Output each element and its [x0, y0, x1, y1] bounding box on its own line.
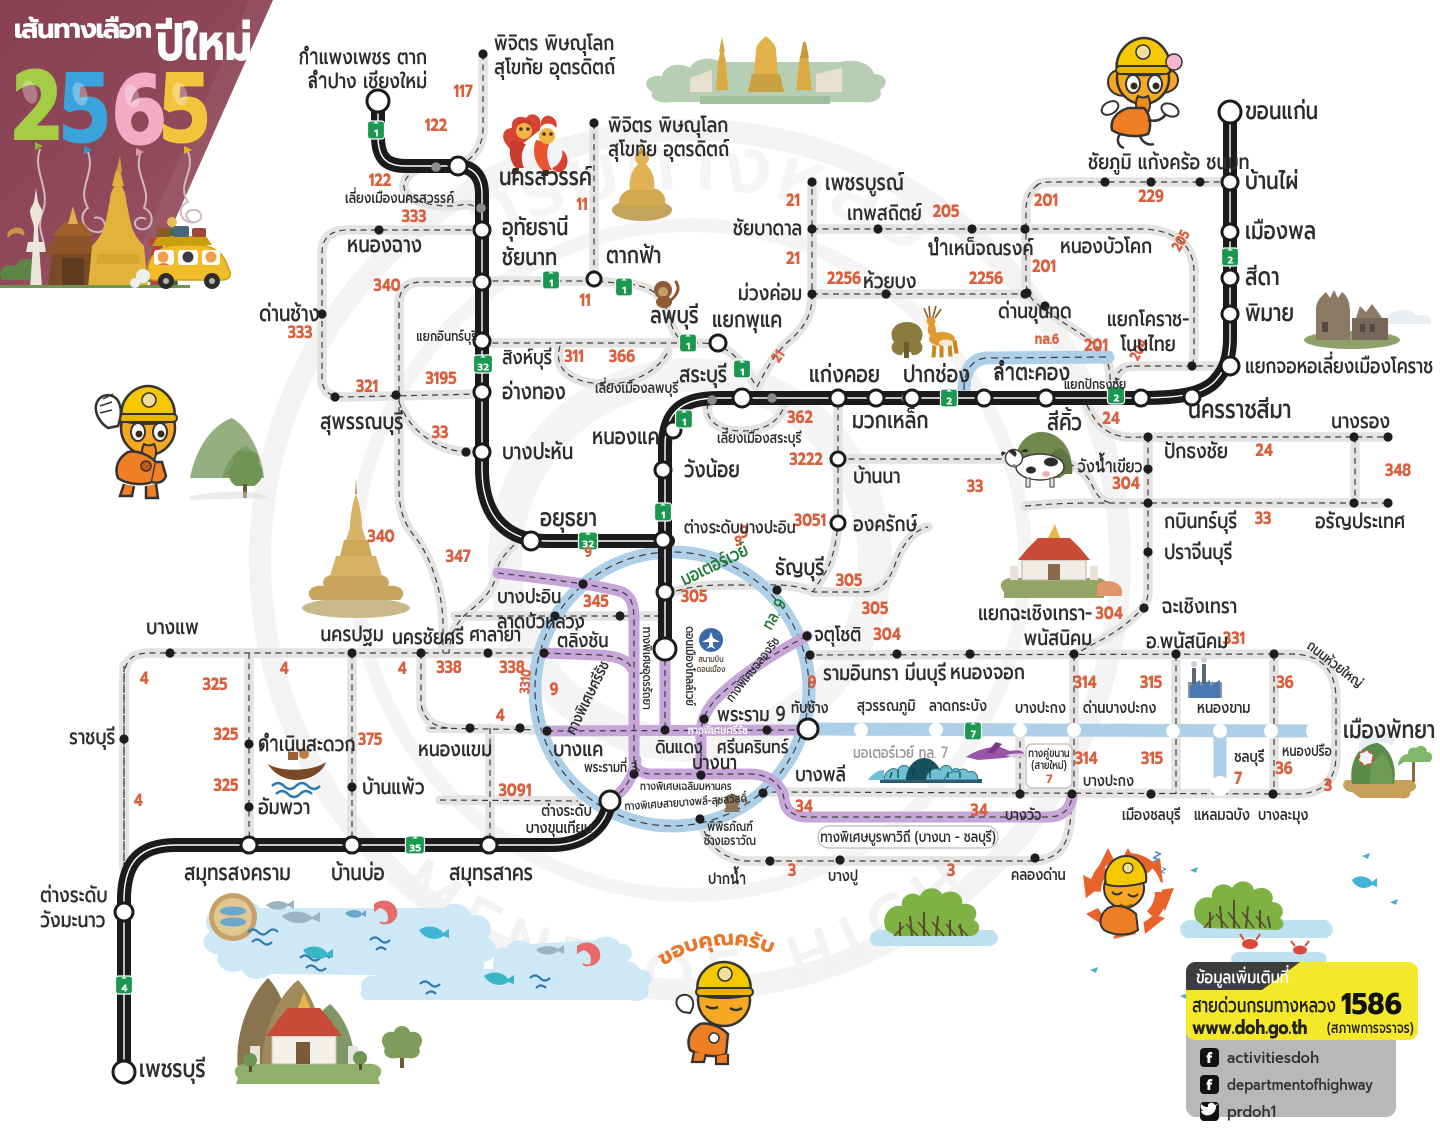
- svg-text:9: 9: [584, 540, 592, 563]
- svg-text:311: 311: [564, 343, 584, 371]
- svg-text:2: 2: [1227, 254, 1233, 269]
- svg-text:1: 1: [686, 340, 690, 355]
- svg-text:7: 7: [1046, 771, 1053, 789]
- svg-text:3051: 3051: [794, 507, 826, 535]
- svg-text:สีดา: สีดา: [1245, 257, 1279, 296]
- svg-text:บ้านนา: บ้านนา: [853, 461, 900, 493]
- svg-text:กบินทร์บุรี: กบินทร์บุรี: [1164, 506, 1237, 538]
- svg-text:340: 340: [367, 523, 395, 551]
- svg-text:โนนไทย: โนนไทย: [1120, 329, 1175, 361]
- svg-text:อยุธยา: อยุธยา: [540, 498, 597, 537]
- svg-text:เมืองพล: เมืองพล: [1245, 211, 1316, 250]
- svg-text:34: 34: [795, 793, 813, 821]
- svg-text:หนองแขม: หนองแขม: [418, 734, 492, 766]
- svg-text:พนัสนิคม: พนัสนิคม: [1024, 623, 1092, 655]
- svg-text:รามอินทรา มีนบุรี: รามอินทรา มีนบุรี: [823, 658, 946, 690]
- svg-text:ลพบุรี: ลพบุรี: [650, 297, 699, 334]
- svg-text:ลำปาง เชียงใหม่: ลำปาง เชียงใหม่: [307, 66, 427, 98]
- svg-text:ปากน้ำ: ปากน้ำ: [708, 866, 746, 892]
- svg-text:24: 24: [1102, 405, 1120, 433]
- svg-text:เทพสถิตย์: เทพสถิตย์: [847, 198, 922, 230]
- svg-text:201: 201: [1084, 332, 1108, 360]
- svg-text:347: 347: [446, 543, 471, 571]
- svg-text:1: 1: [549, 277, 553, 292]
- svg-text:บางวัว: บางวัว: [1005, 803, 1042, 828]
- svg-text:36: 36: [1276, 669, 1294, 697]
- svg-text:หนองฉาง: หนองฉาง: [347, 226, 422, 262]
- svg-text:3: 3: [1324, 772, 1332, 800]
- svg-text:สุโขทัย อุตรดิตถ์: สุโขทัย อุตรดิตถ์: [494, 52, 615, 84]
- svg-text:ข้อมูลเพิ่มเติมที่: ข้อมูลเพิ่มเติมที่: [1196, 963, 1289, 991]
- svg-text:departmentofhighway: departmentofhighway: [1227, 1074, 1373, 1098]
- svg-text:1: 1: [622, 284, 626, 299]
- svg-text:activitiesdoh: activitiesdoh: [1227, 1046, 1319, 1070]
- svg-text:304: 304: [873, 621, 901, 649]
- svg-text:325: 325: [203, 671, 228, 699]
- svg-text:3091: 3091: [499, 777, 532, 805]
- svg-text:อัมพวา: อัมพวา: [258, 792, 310, 824]
- svg-text:4: 4: [134, 787, 144, 815]
- svg-text:3: 3: [947, 857, 955, 885]
- svg-text:ด่านขุนทด: ด่านขุนทด: [998, 296, 1072, 328]
- svg-text:2256: 2256: [827, 265, 862, 293]
- svg-text:บางขุนเทียน: บางขุนเทียน: [526, 816, 592, 841]
- svg-text:ชลบุรี: ชลบุรี: [1234, 745, 1265, 770]
- svg-text:นางรอง: นางรอง: [1331, 406, 1390, 438]
- svg-text:พิมาย: พิมาย: [1245, 293, 1294, 332]
- svg-text:บางปะหัน: บางปะหัน: [502, 433, 573, 469]
- svg-text:แก่งคอย: แก่งคอย: [809, 356, 880, 393]
- svg-text:348: 348: [1385, 457, 1411, 485]
- svg-text:ชัยนาท: ชัยนาท: [502, 239, 557, 276]
- svg-text:205: 205: [933, 198, 960, 226]
- svg-text:7: 7: [970, 728, 976, 743]
- svg-text:เมืองพัทยา: เมืองพัทยา: [1343, 710, 1435, 749]
- svg-text:บางปะกง: บางปะกง: [1083, 769, 1134, 794]
- svg-text:ศาลายา: ศาลายา: [469, 619, 521, 650]
- svg-text:4: 4: [280, 655, 290, 683]
- svg-text:9: 9: [549, 676, 559, 704]
- svg-text:prdoh1: prdoh1: [1227, 1100, 1276, 1124]
- svg-text:สมุทรสงคราม: สมุทรสงคราม: [184, 854, 291, 890]
- svg-text:2: 2: [946, 395, 952, 410]
- svg-text:1: 1: [740, 366, 744, 381]
- svg-text:ปากช่อง: ปากช่อง: [903, 356, 970, 393]
- svg-text:ทางพิเศษบูรพาวิถี (บางนา - ชลบ: ทางพิเศษบูรพาวิถี (บางนา - ชลบุรี): [820, 825, 996, 848]
- svg-text:บางแค: บางแค: [553, 734, 603, 766]
- svg-text:1: 1: [682, 416, 686, 431]
- svg-text:4: 4: [496, 702, 506, 730]
- svg-text:5: 5: [161, 33, 209, 185]
- svg-text:ทางพิเศษอุดรรัถยา: ทางพิเศษอุดรรัถยา: [637, 627, 657, 710]
- svg-text:11: 11: [579, 287, 590, 315]
- svg-text:เมืองชลบุรี: เมืองชลบุรี: [1122, 803, 1181, 828]
- svg-text:แยกจอหอเลี่ยงเมืองโคราช: แยกจอหอเลี่ยงเมืองโคราช: [1245, 350, 1433, 383]
- svg-text:เลี่ยงเมืองลพบุรี: เลี่ยงเมืองลพบุรี: [595, 376, 679, 400]
- svg-text:3195: 3195: [425, 365, 456, 393]
- svg-text:33: 33: [1255, 505, 1272, 533]
- svg-text:วังมะนาว: วังมะนาว: [40, 905, 105, 937]
- svg-text:4: 4: [398, 655, 408, 683]
- svg-text:อรัญประเทศ: อรัญประเทศ: [1315, 506, 1405, 538]
- svg-text:ลาดกระบัง: ลาดกระบัง: [929, 694, 987, 719]
- svg-text:33: 33: [967, 473, 984, 501]
- svg-text:314: 314: [1074, 669, 1097, 697]
- svg-text:35: 35: [409, 842, 421, 857]
- svg-text:ห้วยบง: ห้วยบง: [863, 266, 917, 298]
- svg-text:32: 32: [477, 361, 489, 376]
- svg-text:345: 345: [583, 588, 608, 616]
- svg-text:บางพลี: บางพลี: [795, 759, 846, 790]
- svg-text:2: 2: [12, 31, 61, 183]
- svg-text:ขอนแก่น: ขอนแก่น: [1245, 91, 1318, 130]
- svg-text:ดำเนินสะดวก: ดำเนินสะดวก: [258, 729, 355, 761]
- svg-text:นครราชสีมา: นครราชสีมา: [1188, 389, 1291, 429]
- svg-text:1: 1: [374, 127, 378, 142]
- svg-text:หนองจอก: หนองจอก: [950, 657, 1025, 689]
- svg-text:2256: 2256: [969, 265, 1004, 293]
- svg-text:เพชรบูรณ์: เพชรบูรณ์: [825, 164, 905, 200]
- svg-text:สิงห์บุรี: สิงห์บุรี: [502, 342, 552, 373]
- svg-text:หนองแค: หนองแค: [592, 418, 659, 454]
- svg-text:บ้านแพ้ว: บ้านแพ้ว: [362, 772, 425, 804]
- svg-text:4: 4: [140, 665, 150, 693]
- svg-text:มอเตอร์เวย์ ทล. 7: มอเตอร์เวย์ ทล. 7: [853, 741, 948, 766]
- svg-text:21: 21: [786, 245, 800, 273]
- svg-text:ธัญบุรี: ธัญบุรี: [775, 549, 824, 585]
- svg-text:3222: 3222: [789, 446, 823, 474]
- svg-text:9: 9: [807, 669, 817, 697]
- svg-text:34: 34: [970, 797, 988, 825]
- svg-text:สุพรรณบุรี: สุพรรณบุรี: [320, 403, 404, 439]
- svg-text:ชัยภูมิ แก้งคร้อ ชนบท: ชัยภูมิ แก้งคร้อ ชนบท: [1088, 147, 1249, 179]
- svg-text:สีคิ้ว: สีคิ้ว: [1047, 404, 1082, 441]
- svg-text:ม่วงค่อม: ม่วงค่อม: [738, 278, 802, 310]
- svg-text:ทับช้าง: ทับช้าง: [791, 696, 829, 721]
- svg-text:บางละมุง: บางละมุง: [1258, 803, 1308, 828]
- svg-text:อ่างทอง: อ่างทอง: [502, 373, 566, 409]
- svg-text:อ.พนัสนิคม: อ.พนัสนิคม: [1146, 626, 1228, 658]
- svg-text:นครปฐม: นครปฐม: [320, 619, 383, 651]
- svg-text:สมุทรสาคร: สมุทรสาคร: [449, 854, 533, 890]
- svg-text:นครสวรรค์: นครสวรรค์: [499, 157, 592, 196]
- svg-text:www.doh.go.th: www.doh.go.th: [1192, 1012, 1307, 1043]
- svg-text:315: 315: [1140, 669, 1162, 697]
- svg-text:เลี่ยงเมืองสระบุรี: เลี่ยงเมืองสระบุรี: [717, 426, 802, 450]
- svg-text:315: 315: [1141, 745, 1163, 773]
- svg-text:3310: 3310: [514, 668, 537, 694]
- svg-text:นครชัยศรี: นครชัยศรี: [392, 622, 464, 654]
- svg-text:วังน้อย: วังน้อย: [684, 451, 740, 487]
- svg-text:เลี่ยงเมืองนครสวรรค์: เลี่ยงเมืองนครสวรรค์: [345, 186, 455, 210]
- svg-text:ตากฟ้า: ตากฟ้า: [606, 237, 661, 274]
- svg-text:33: 33: [432, 419, 449, 447]
- svg-text:แยกอินทร์บุรี: แยกอินทร์บุรี: [416, 327, 477, 348]
- svg-text:มวกเหล็ก: มวกเหล็ก: [852, 402, 929, 439]
- svg-text:หนองปรือ: หนองปรือ: [1282, 739, 1332, 762]
- svg-text:ปักธงชัย: ปักธงชัย: [1164, 436, 1228, 468]
- svg-text:5: 5: [61, 33, 109, 185]
- svg-text:1: 1: [661, 509, 665, 524]
- svg-text:3: 3: [788, 857, 796, 885]
- svg-text:321: 321: [356, 373, 378, 401]
- svg-text:ด่านช้าง: ด่านช้าง: [259, 295, 320, 331]
- svg-text:325: 325: [214, 721, 239, 749]
- svg-text:แหลมฉบัง: แหลมฉบัง: [1194, 803, 1250, 828]
- svg-text:ฉะเชิงเทรา: ฉะเชิงเทรา: [1162, 591, 1237, 623]
- svg-text:338: 338: [436, 654, 462, 682]
- svg-text:สุโขทัย อุตรดิตถ์: สุโขทัย อุตรดิตถ์: [608, 134, 729, 166]
- svg-text:สระบุรี: สระบุรี: [679, 356, 727, 392]
- svg-text:คลองด่าน: คลองด่าน: [1011, 863, 1066, 888]
- svg-text:305: 305: [862, 595, 889, 623]
- svg-text:ราชบุรี: ราชบุรี: [69, 722, 115, 754]
- svg-text:บ้านบ่อ: บ้านบ่อ: [331, 854, 385, 890]
- svg-text:117: 117: [454, 78, 473, 106]
- svg-text:ปราจีนบุรี: ปราจีนบุรี: [1164, 537, 1232, 569]
- svg-text:ช้างเอราวัณ: ช้างเอราวัณ: [704, 831, 756, 851]
- svg-text:ลำตะคอง: ลำตะคอง: [993, 354, 1070, 391]
- svg-text:เพชรบุรี: เพชรบุรี: [139, 1049, 206, 1088]
- svg-text:366: 366: [609, 343, 636, 371]
- svg-text:201: 201: [1034, 187, 1058, 215]
- svg-text:บางนา: บางนา: [692, 747, 737, 778]
- svg-text:ทางพิเศษศรีรัช: ทางพิเศษศรีรัช: [688, 721, 748, 740]
- svg-text:จตุโชติ: จตุโชติ: [814, 619, 861, 650]
- svg-text:305: 305: [836, 567, 863, 595]
- svg-text:บางปะกง: บางปะกง: [1015, 696, 1066, 721]
- svg-text:บ้านไผ่: บ้านไผ่: [1245, 161, 1298, 200]
- svg-text:24: 24: [1255, 437, 1273, 465]
- svg-text:ทล.6: ทล.6: [1035, 327, 1060, 350]
- svg-text:บำเหน็จณรงค์: บำเหน็จณรงค์: [928, 233, 1034, 265]
- svg-text:หนองขาม: หนองขาม: [1197, 696, 1250, 721]
- svg-text:229: 229: [1138, 183, 1164, 211]
- svg-text:21: 21: [786, 187, 800, 215]
- svg-text:ดอนเมือง: ดอนเมือง: [697, 663, 726, 676]
- svg-text:สุวรรณภูมิ: สุวรรณภูมิ: [857, 694, 916, 719]
- svg-text:122: 122: [425, 112, 448, 140]
- svg-text:304: 304: [1095, 600, 1123, 628]
- svg-text:ชัยบาดาล: ชัยบาดาล: [733, 213, 802, 245]
- svg-text:(สภาพการจราจร): (สภาพการจราจร): [1327, 1016, 1414, 1039]
- svg-text:องครักษ์: องครักษ์: [853, 509, 917, 541]
- svg-text:บางแพ: บางแพ: [146, 612, 199, 644]
- svg-text:201: 201: [1032, 253, 1056, 281]
- svg-text:แยกปักธงชัย: แยกปักธงชัย: [1064, 375, 1126, 396]
- svg-text:ตลิ่งชัน: ตลิ่งชัน: [557, 625, 608, 656]
- svg-text:340: 340: [373, 272, 401, 300]
- svg-text:4: 4: [121, 982, 128, 997]
- svg-text:375: 375: [358, 726, 382, 754]
- svg-text:บางปู: บางปู: [828, 864, 858, 889]
- svg-text:วังน้ำเขียว: วังน้ำเขียว: [1078, 452, 1143, 480]
- svg-text:หนองบัวโคก: หนองบัวโคก: [1060, 231, 1152, 263]
- svg-text:ด่านบางปะกง: ด่านบางปะกง: [1083, 696, 1156, 721]
- svg-text:325: 325: [214, 772, 239, 800]
